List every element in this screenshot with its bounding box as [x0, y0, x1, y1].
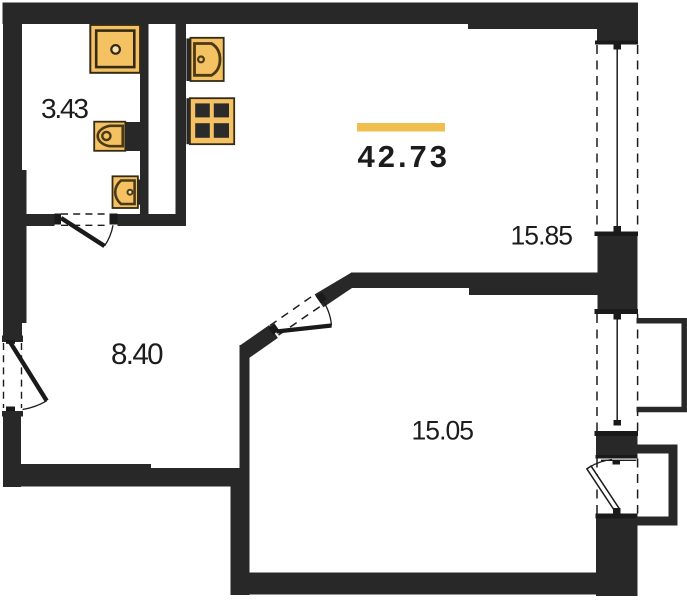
svg-text:3.43: 3.43: [41, 93, 89, 124]
svg-text:8.40: 8.40: [111, 338, 164, 371]
svg-text:42.73: 42.73: [358, 139, 448, 174]
svg-text:15.05: 15.05: [412, 416, 475, 446]
svg-text:15.85: 15.85: [511, 221, 574, 251]
